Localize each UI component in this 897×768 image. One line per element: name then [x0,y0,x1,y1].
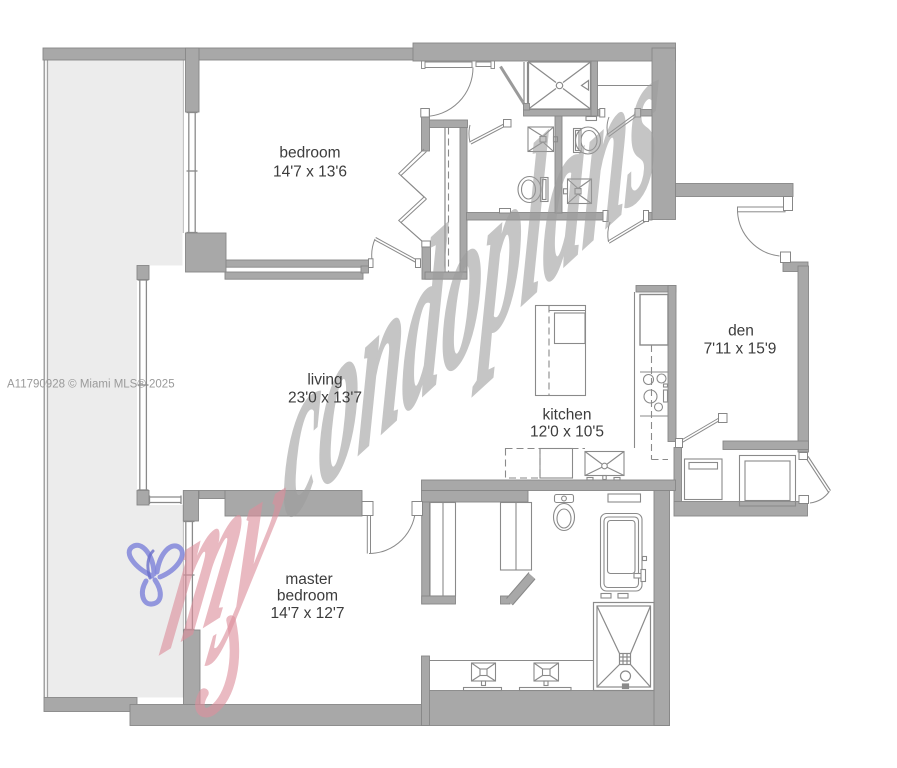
svg-text:den: den [728,323,754,340]
svg-text:7'11 x 15'9: 7'11 x 15'9 [704,341,777,358]
svg-text:23'0 x 13'7: 23'0 x 13'7 [288,390,362,407]
svg-text:14'7 x 12'7: 14'7 x 12'7 [270,605,344,622]
svg-text:living: living [307,372,342,389]
svg-text:A11790928 © Miami MLS® 2025: A11790928 © Miami MLS® 2025 [7,379,175,391]
svg-text:bedroom: bedroom [279,145,340,162]
svg-text:12'0 x 10'5: 12'0 x 10'5 [530,424,604,441]
svg-text:kitchen: kitchen [542,407,591,424]
svg-text:14'7 x 13'6: 14'7 x 13'6 [273,164,347,181]
svg-text:master: master [285,571,332,588]
svg-text:bedroom: bedroom [277,588,338,605]
